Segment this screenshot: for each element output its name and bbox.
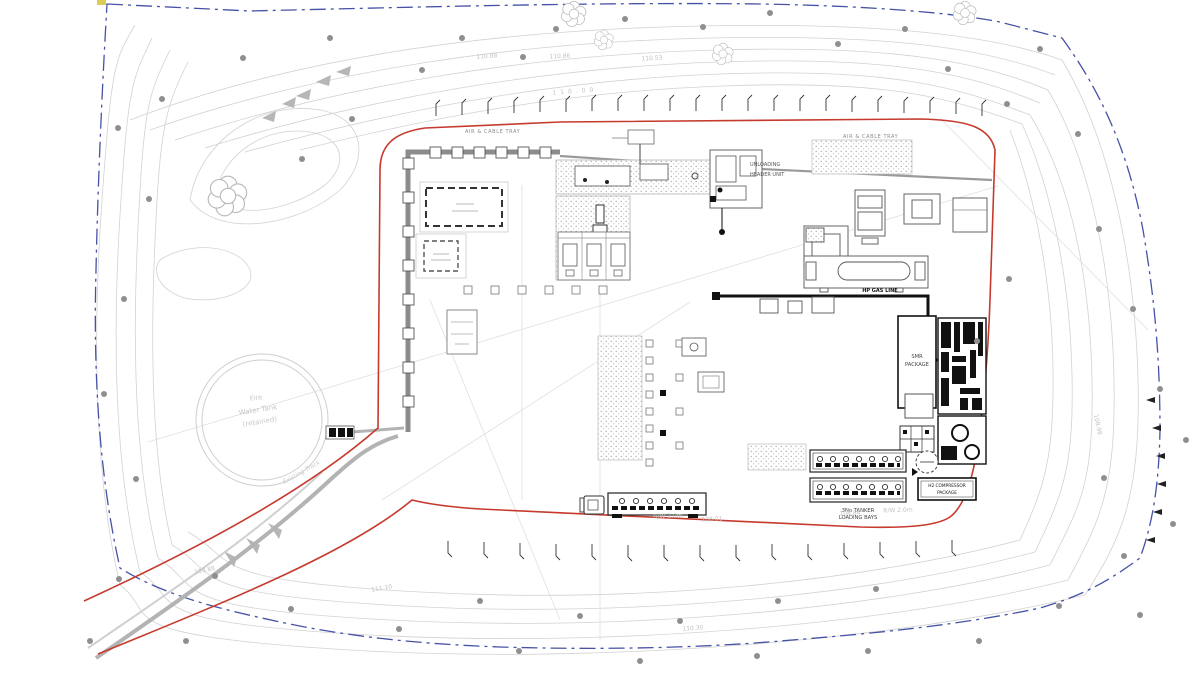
h2-compressor-label: H2 COMPRESSOR	[928, 483, 966, 489]
tube-trailer-truck	[580, 493, 706, 518]
unloading-unit-label: UNLOADING	[750, 162, 780, 168]
h2-compressor-package	[918, 478, 976, 500]
site-gate	[326, 426, 354, 439]
elevation-label: 110.30	[682, 624, 704, 632]
future-unit-small	[416, 234, 466, 278]
gas-line	[712, 292, 928, 318]
elevation-label: 110.86	[549, 52, 571, 60]
center-equipment	[598, 336, 806, 470]
h2-compressor-label: PACKAGE	[937, 490, 957, 496]
gas-line-label: HP GAS LINE	[862, 288, 898, 294]
fire-water-tank-label: (retained)	[242, 415, 278, 428]
tanker-loading-bay	[810, 478, 906, 502]
existing-track-label: Existing Track	[282, 459, 322, 486]
elevation-label: 110.88	[476, 52, 498, 60]
slope-ticks-right	[1146, 397, 1166, 543]
tree-icon	[712, 43, 733, 65]
fence-ticks-bottom	[448, 540, 956, 561]
site-plan-page: Fire Water Tank (retained)	[0, 0, 1200, 677]
tanker-loading-bay	[810, 450, 906, 472]
highlight-mark	[97, 0, 106, 5]
future-unit-large	[420, 182, 508, 232]
elevation-label: 108.98	[1092, 414, 1103, 436]
smr-package-label: PACKAGE	[905, 362, 929, 368]
access-road	[88, 428, 404, 658]
tree-icon	[594, 30, 613, 50]
tree-icon	[953, 1, 976, 24]
horizontal-vessel	[804, 256, 928, 292]
elevation-label: R/W 2.0m	[883, 506, 913, 514]
fire-water-tank-label: Fire	[249, 393, 263, 403]
gravel-pad	[812, 140, 912, 174]
air-cable-tray-label: AIR & CABLE TRAY	[843, 134, 899, 140]
elevation-label: 108.84	[839, 510, 860, 518]
tree-icon	[561, 1, 586, 26]
support-row	[464, 286, 607, 294]
unloading-unit-label: HEADER UNIT	[750, 172, 785, 178]
air-cable-tray-label: AIR & CABLE TRAY	[465, 129, 521, 135]
site-plan-drawing: Fire Water Tank (retained)	[0, 0, 1200, 677]
tree-icon	[208, 176, 247, 216]
utility-unit	[447, 310, 477, 354]
elevation-label: 108.01	[701, 516, 722, 524]
elevation-label: 110.53	[641, 54, 663, 62]
elevation-label: R/W 2.0m	[653, 512, 683, 520]
smr-package-label: SMR	[911, 354, 923, 360]
elevation-label: 111.10	[371, 583, 393, 594]
elevation-label: 110.00	[552, 86, 597, 96]
